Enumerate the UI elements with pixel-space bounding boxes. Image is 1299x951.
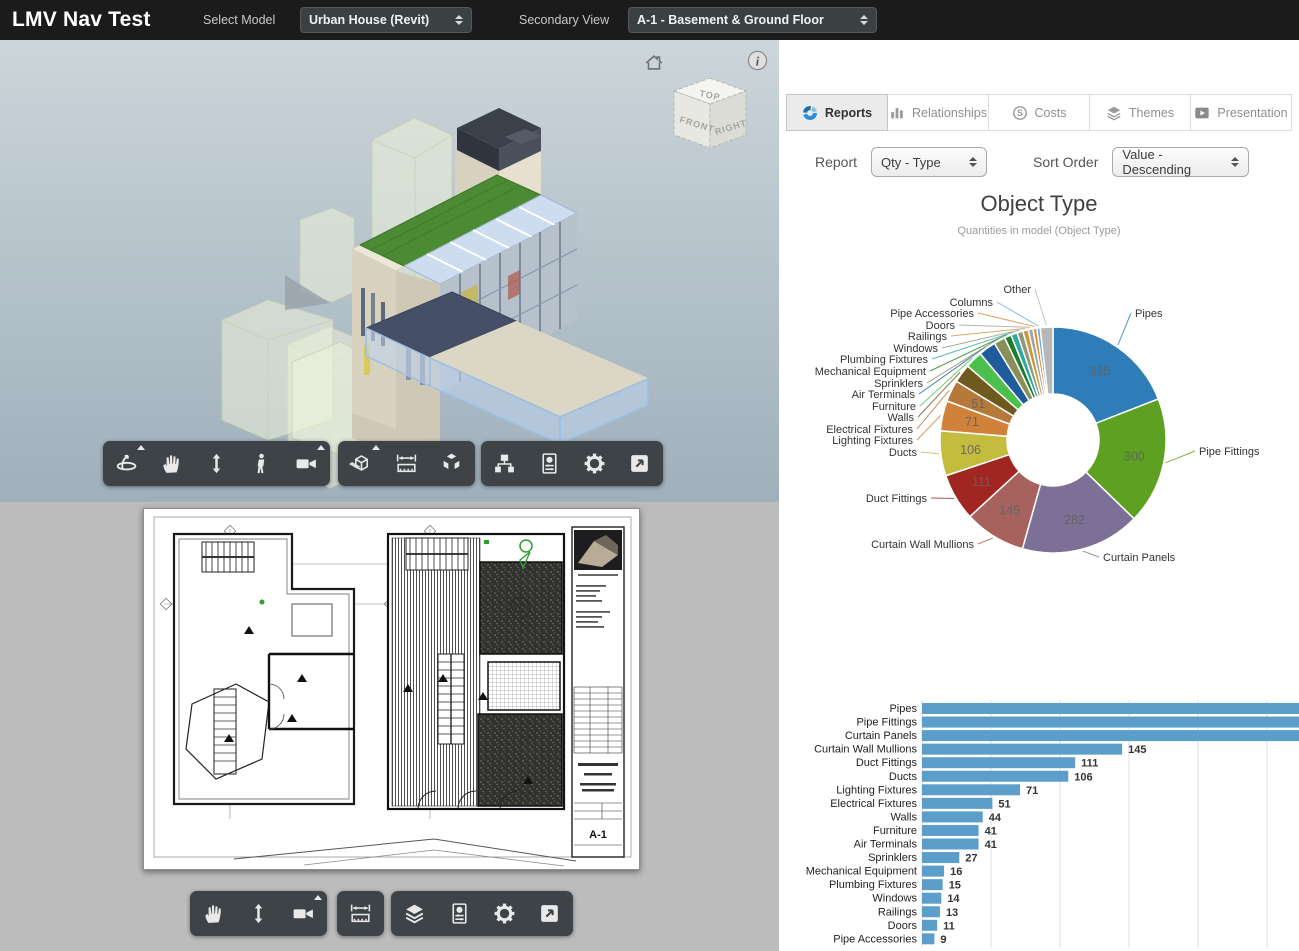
donut-label: Railings <box>908 331 948 343</box>
donut-leader-line <box>1166 451 1195 463</box>
donut-label: Pipe Accessories <box>890 308 974 320</box>
donut-label: Curtain Wall Mullions <box>871 539 974 551</box>
viewcube[interactable]: TOP FRONT RIGHT <box>674 78 748 148</box>
bar-category-label: Pipes <box>889 703 917 715</box>
bar-ducts[interactable] <box>922 771 1068 782</box>
tab-label: Themes <box>1129 106 1174 120</box>
bar-value-label: 44 <box>989 812 1002 824</box>
secondary-view-select[interactable]: A-1 - Basement & Ground Floor <box>628 7 877 33</box>
bar-value-label: 71 <box>1026 785 1038 797</box>
toolbar-2d-panels <box>391 891 573 936</box>
model-select-value: Urban House (Revit) <box>309 13 429 27</box>
info-icon[interactable]: i <box>747 50 768 71</box>
top-bar: LMV Nav Test Select Model Urban House (R… <box>0 0 1299 40</box>
tab-label: Relationships <box>912 106 987 120</box>
donut-label: Ducts <box>889 447 918 459</box>
bar-railings[interactable] <box>922 906 940 917</box>
settings-button[interactable] <box>482 891 527 936</box>
donut-label: Doors <box>926 320 956 332</box>
donut-label: Windows <box>893 343 938 355</box>
sort-order-select[interactable]: Value - Descending <box>1112 147 1249 177</box>
measure-button[interactable] <box>384 441 429 486</box>
fullscreen-button[interactable] <box>617 441 662 486</box>
select-arrows-icon <box>969 157 977 167</box>
bar-value-label: 13 <box>946 907 958 919</box>
toolbar-3d-navigation <box>103 441 330 486</box>
app-title: LMV Nav Test <box>12 8 151 32</box>
sheet-number: A-1 <box>589 829 607 841</box>
layers-button[interactable] <box>392 891 437 936</box>
bar-category-label: Plumbing Fixtures <box>829 879 918 891</box>
camera-button[interactable] <box>284 441 329 486</box>
donut-label: Walls <box>888 412 915 424</box>
bar-category-label: Curtain Panels <box>845 730 918 742</box>
bar-value-label: 11 <box>943 920 955 932</box>
bar-category-label: Walls <box>891 811 918 823</box>
pan-hand-button[interactable] <box>191 891 236 936</box>
bar-value-label: 106 <box>1074 771 1092 783</box>
donut-label: Lighting Fixtures <box>832 435 913 447</box>
bar-windows[interactable] <box>922 893 941 904</box>
bar-category-label: Ducts <box>889 771 918 783</box>
bar-walls[interactable] <box>922 811 983 822</box>
lmv-nav-test-app: LMV Nav Test Select Model Urban House (R… <box>0 0 1299 951</box>
bar-mechanical-equipment[interactable] <box>922 866 944 877</box>
bar-category-label: Electrical Fixtures <box>830 798 917 810</box>
select-model-label: Select Model <box>203 13 275 27</box>
donut-label: Mechanical Equipment <box>815 366 926 378</box>
donut-leader-line <box>921 452 939 454</box>
donut-label: Sprinklers <box>874 378 923 390</box>
bar-category-label: Sprinklers <box>868 852 917 864</box>
donut-label: Plumbing Fixtures <box>840 354 929 366</box>
play-icon <box>1194 105 1210 121</box>
bar-value-label: 14 <box>947 893 960 905</box>
bar-value-label: 41 <box>985 825 997 837</box>
report-controls: Report Qty - Type Sort Order Value - Des… <box>815 146 1249 178</box>
home-icon[interactable] <box>643 52 665 74</box>
tab-label: Reports <box>825 106 872 120</box>
explode-button[interactable] <box>429 441 474 486</box>
bar-category-label: Lighting Fixtures <box>836 784 917 796</box>
drawing-sheet: A-1 <box>143 508 640 870</box>
donut-leader-line <box>1083 551 1099 557</box>
measure-button[interactable] <box>338 891 383 936</box>
bar-sprinklers[interactable] <box>922 852 959 863</box>
reports-panel: Reports Relationships S Costs <box>779 40 1299 951</box>
donut-value-label: 106 <box>960 443 981 457</box>
svg-text:i: i <box>756 54 760 68</box>
donut-value-label: 71 <box>965 415 979 429</box>
donut-leader-line <box>917 415 941 440</box>
toolbar-2d-measure <box>337 891 384 936</box>
orbit-button[interactable] <box>104 441 149 486</box>
select-arrows-icon <box>455 15 463 25</box>
tab-relationships[interactable]: Relationships <box>888 94 989 131</box>
donut-value-label: 282 <box>1064 513 1085 527</box>
tab-themes[interactable]: Themes <box>1090 94 1191 131</box>
donut-label: Air Terminals <box>852 389 916 401</box>
bar-category-label: Railings <box>878 906 918 918</box>
bar-pipe-accessories[interactable] <box>922 933 934 944</box>
fullscreen-button[interactable] <box>527 891 572 936</box>
bar-value-label: 51 <box>998 798 1010 810</box>
settings-button[interactable] <box>572 441 617 486</box>
properties-button[interactable] <box>437 891 482 936</box>
donut-leader-line <box>978 538 993 544</box>
sort-order-select-value: Value - Descending <box>1122 147 1221 177</box>
bar-value-label: 15 <box>949 880 961 892</box>
zoom-updown-button[interactable] <box>194 441 239 486</box>
donut-label: Pipes <box>1135 308 1163 320</box>
toolbar-3d-tools <box>338 441 475 486</box>
basement-plan <box>174 534 354 804</box>
bar-category-label: Pipe Fittings <box>856 717 917 729</box>
donut-value-label: 145 <box>999 504 1020 518</box>
reports-donut-icon <box>802 105 818 121</box>
donut-label: Furniture <box>872 401 916 413</box>
bar-electrical-fixtures[interactable] <box>922 798 992 809</box>
model-tree-button[interactable] <box>482 441 527 486</box>
bar-category-label: Doors <box>888 920 918 932</box>
viewer-2d[interactable]: A-1 <box>0 502 779 951</box>
floor-plan-drawing: A-1 <box>144 509 639 869</box>
dollar-circle-icon: S <box>1012 105 1028 121</box>
report-label: Report <box>815 154 857 170</box>
donut-label: Electrical Fixtures <box>826 424 913 436</box>
bar-category-label: Pipe Accessories <box>833 933 917 945</box>
bar-value-label: 41 <box>985 839 997 851</box>
toolbar-3d-panels <box>481 441 663 486</box>
tab-presentation[interactable]: Presentation <box>1191 94 1292 131</box>
sort-order-label: Sort Order <box>1033 154 1098 170</box>
model-select[interactable]: Urban House (Revit) <box>300 7 472 33</box>
layers-icon <box>1106 105 1122 121</box>
chart-title: Object Type <box>779 191 1299 217</box>
tab-reports[interactable]: Reports <box>786 94 888 131</box>
3d-model-scene: TOP FRONT RIGHT <box>0 40 779 502</box>
bar-value-label: 27 <box>965 853 977 865</box>
bar-lighting-fixtures[interactable] <box>922 784 1020 795</box>
bar-category-label: Curtain Wall Mullions <box>814 744 917 756</box>
tab-label: Costs <box>1035 106 1067 120</box>
bar-category-label: Furniture <box>873 825 917 837</box>
viewer-3d[interactable]: TOP FRONT RIGHT i <box>0 40 779 502</box>
secondary-view-value: A-1 - Basement & Ground Floor <box>637 13 824 27</box>
tab-label: Presentation <box>1217 106 1287 120</box>
toolbar-2d-navigation <box>190 891 327 936</box>
donut-leader-line <box>1118 313 1131 345</box>
donut-label: Curtain Panels <box>1103 552 1176 564</box>
bar-category-label: Windows <box>872 893 917 905</box>
camera-button[interactable] <box>281 891 326 936</box>
bar-value-label: 16 <box>950 866 962 878</box>
donut-label: Columns <box>950 297 994 309</box>
tab-bar: Reports Relationships S Costs <box>786 94 1292 131</box>
donut-label: Other <box>1003 284 1031 296</box>
bar-curtain-panels[interactable] <box>922 730 1299 741</box>
properties-button[interactable] <box>527 441 572 486</box>
chart-subtitle: Quantities in model (Object Type) <box>779 225 1299 237</box>
bar-pipe-fittings[interactable] <box>922 717 1299 728</box>
select-arrows-icon <box>1231 157 1239 167</box>
donut-leader-line <box>978 313 1034 327</box>
first-person-button[interactable] <box>239 441 284 486</box>
bar-value-label: 9 <box>940 934 946 946</box>
bar-value-label: 111 <box>1081 758 1098 770</box>
bar-duct-fittings[interactable] <box>922 757 1075 768</box>
pan-hand-button[interactable] <box>149 441 194 486</box>
section-box-button[interactable] <box>339 441 384 486</box>
bar-value-label: 145 <box>1128 744 1146 756</box>
secondary-view-label: Secondary View <box>519 13 609 27</box>
bar-category-label: Air Terminals <box>854 839 918 851</box>
donut-leader-line <box>959 325 1030 327</box>
bar-category-label: Mechanical Equipment <box>806 866 917 878</box>
select-arrows-icon <box>860 15 868 25</box>
donut-label: Pipe Fittings <box>1199 446 1260 458</box>
donut-value-label: 300 <box>1124 449 1145 463</box>
bar-curtain-wall-mullions[interactable] <box>922 744 1122 755</box>
title-block: A-1 <box>572 527 624 857</box>
bar-chart-icon <box>889 105 905 121</box>
donut-value-label: 51 <box>971 397 985 411</box>
tab-costs[interactable]: S Costs <box>989 94 1090 131</box>
bar-category-label: Duct Fittings <box>856 757 918 769</box>
bar-plumbing-fixtures[interactable] <box>922 879 943 890</box>
donut-leader-line <box>1035 289 1046 325</box>
object-type-donut-chart[interactable]: Pipes315Pipe Fittings300Curtain Panels28… <box>779 240 1299 612</box>
bar-doors[interactable] <box>922 920 937 931</box>
donut-value-label: 315 <box>1089 364 1110 378</box>
ground-floor-plan <box>388 534 564 809</box>
bar-furniture[interactable] <box>922 825 979 836</box>
donut-value-label: 111 <box>972 475 991 489</box>
object-type-bar-chart[interactable]: PipesPipe FittingsCurtain PanelsCurtain … <box>779 698 1299 951</box>
report-select[interactable]: Qty - Type <box>871 147 987 177</box>
bar-air-terminals[interactable] <box>922 839 979 850</box>
zoom-updown-button[interactable] <box>236 891 281 936</box>
report-select-value: Qty - Type <box>881 155 941 170</box>
svg-text:S: S <box>1017 108 1023 118</box>
bar-pipes[interactable] <box>922 703 1299 714</box>
donut-label: Duct Fittings <box>866 493 928 505</box>
